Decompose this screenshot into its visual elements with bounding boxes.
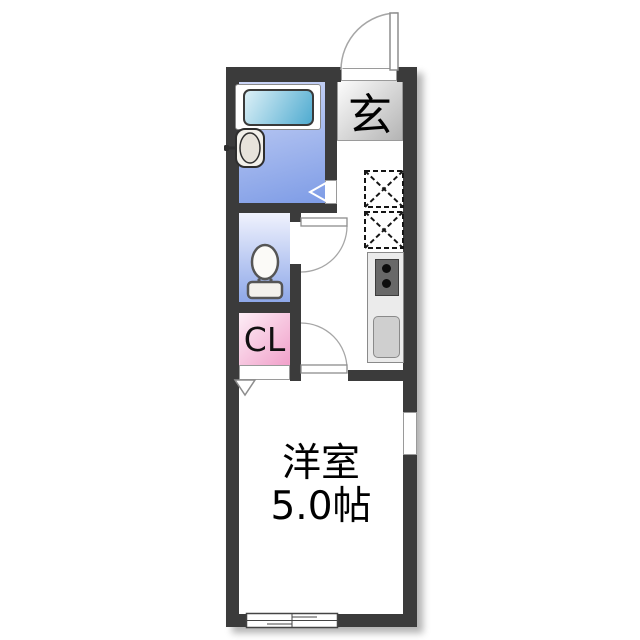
washbasin-icon: [222, 126, 268, 170]
burner-icon: [382, 264, 391, 273]
closet-door-arrow-icon: [232, 378, 258, 398]
appliance-space-icon: [363, 169, 405, 249]
bathroom-door-arrow-icon: [306, 180, 328, 204]
entrance-floor: 玄: [337, 80, 403, 141]
bathtub-icon: [243, 89, 314, 126]
wall-right-lower: [403, 455, 417, 627]
right-window: [403, 412, 417, 455]
wall-below-bathroom: [226, 203, 337, 213]
sliding-window-icon: [245, 612, 339, 629]
entrance-label: 玄: [348, 79, 392, 143]
room-door-icon: [297, 317, 353, 377]
burner-icon: [382, 279, 391, 288]
room-size: 5.0帖: [239, 485, 403, 528]
wall-bathroom-right: [325, 82, 337, 180]
wall-below-toilet: [226, 302, 301, 313]
wall-top: [226, 67, 341, 82]
entrance-door-icon: [337, 10, 401, 74]
kitchen-sink-icon: [373, 316, 400, 358]
closet-label: CL: [244, 320, 285, 359]
wall-room-top: [348, 370, 417, 381]
room-label: 洋室 5.0帖: [239, 442, 403, 528]
floor-plan: CL 玄: [0, 0, 640, 640]
toilet-door-icon: [297, 214, 353, 274]
toilet-icon: [240, 238, 290, 302]
room-name: 洋室: [239, 442, 403, 485]
wall-right-upper: [403, 67, 417, 412]
closet-floor: CL: [239, 313, 290, 365]
